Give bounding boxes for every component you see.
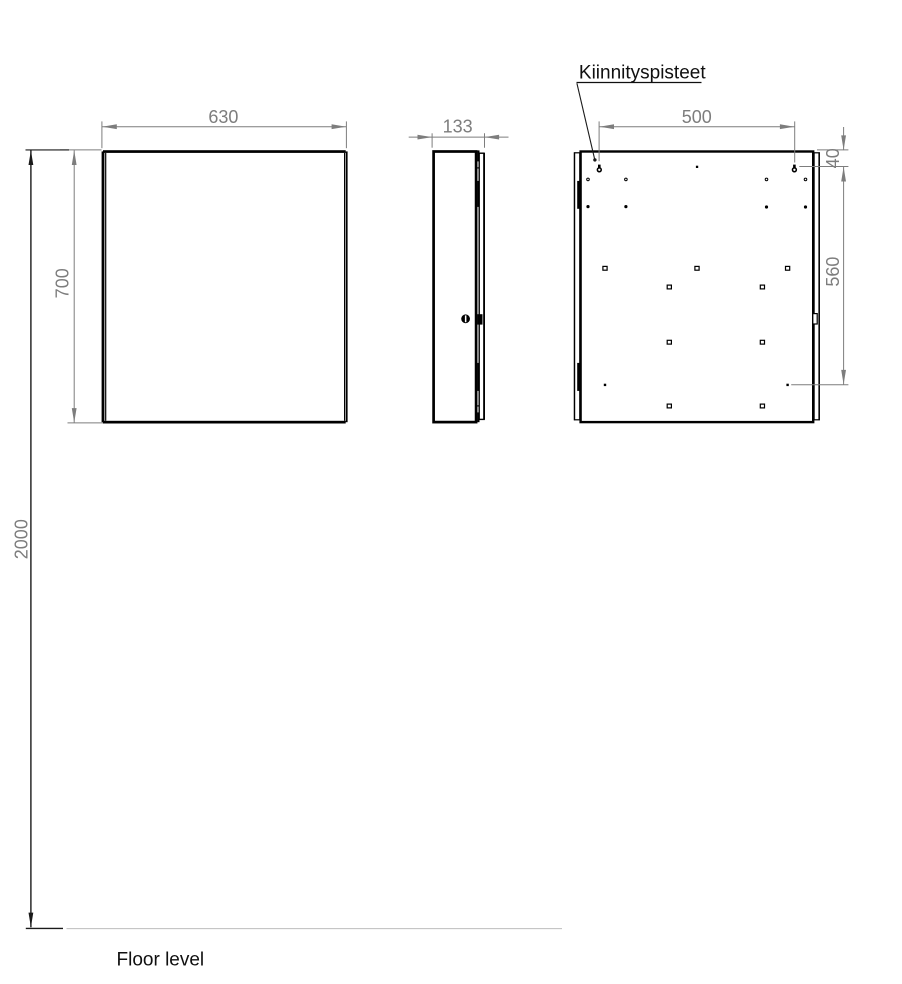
svg-text:630: 630 xyxy=(208,107,238,127)
svg-text:133: 133 xyxy=(443,117,473,137)
svg-text:560: 560 xyxy=(823,257,843,287)
svg-text:Floor level: Floor level xyxy=(117,950,205,971)
svg-text:700: 700 xyxy=(53,268,73,298)
svg-text:Kiinnityspisteet: Kiinnityspisteet xyxy=(579,63,706,84)
svg-text:500: 500 xyxy=(682,107,712,127)
svg-text:2000: 2000 xyxy=(12,519,32,559)
svg-text:40: 40 xyxy=(823,148,843,168)
